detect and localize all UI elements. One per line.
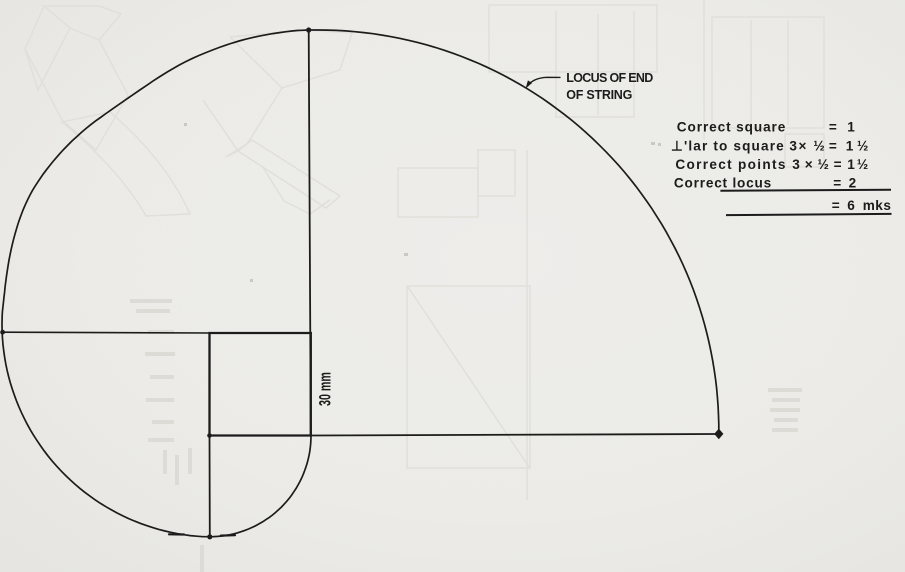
svg-text:⊥'lar to square: ⊥'lar to square — [671, 139, 784, 154]
svg-text:Correct points: Correct points — [675, 157, 785, 172]
svg-text:Correct square: Correct square — [677, 120, 786, 135]
svg-text:OF STRING: OF STRING — [566, 88, 632, 102]
svg-text:1½: 1½ — [847, 157, 868, 172]
svg-text:3×½=: 3×½= — [792, 157, 841, 172]
svg-text:1½: 1½ — [846, 139, 869, 154]
svg-text:=: = — [829, 139, 837, 154]
svg-text:=: = — [829, 120, 837, 135]
svg-text:LOCUS OF END: LOCUS OF END — [566, 71, 653, 85]
svg-text:3× ½: 3× ½ — [789, 139, 824, 154]
svg-text:=: = — [832, 198, 840, 213]
svg-text:2: 2 — [849, 176, 857, 191]
svg-text:6: 6 — [847, 198, 855, 213]
svg-text:30 mm: 30 mm — [315, 372, 334, 406]
svg-text:Correct locus: Correct locus — [674, 176, 771, 191]
svg-text:1: 1 — [847, 120, 855, 135]
svg-text:=: = — [833, 176, 841, 191]
svg-text:mks: mks — [863, 198, 891, 213]
